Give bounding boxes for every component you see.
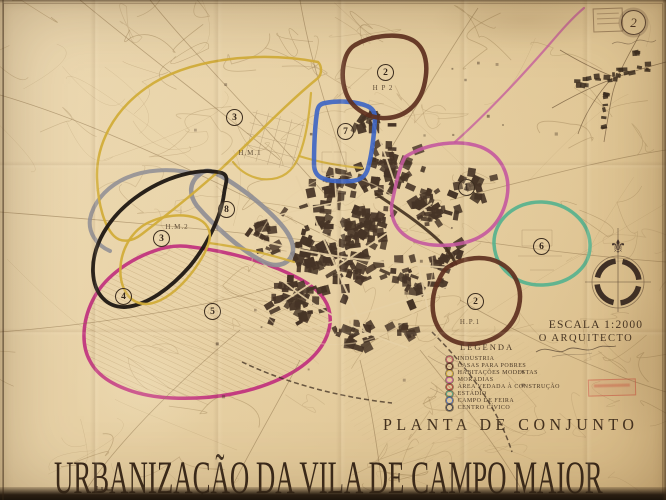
zone-marker-2: 2 (377, 64, 394, 81)
zone-marker-3: 3 (153, 230, 170, 247)
right-edge-shadow (662, 0, 666, 500)
margin-handwriting (612, 40, 656, 44)
zone-marker-4: 4 (115, 288, 132, 305)
legend-color-ring (446, 370, 453, 377)
legend-item: HABITAÇÕES MODESTAS (446, 370, 631, 377)
legend-item-label: CAMPO DE FEIRA (458, 398, 515, 404)
area-label: H.P.1 (460, 318, 480, 326)
legend: LEGENDA INDUSTRIACASAS PARA POBRESHABITA… (446, 342, 631, 411)
area-label: H.M.2 (165, 223, 188, 231)
legend-color-ring (446, 404, 453, 411)
sheet-number-seal: 2 (621, 10, 646, 35)
legend-item: CASAS PARA POBRES (446, 363, 631, 370)
zone-marker-2: 2 (467, 293, 484, 310)
legend-item: CENTRO CÍVICO (446, 404, 631, 411)
zone-marker-6: 6 (533, 238, 550, 255)
legend-color-ring (446, 384, 453, 391)
map-sheet: ⚜ 3271834562 H.M.1H P 2H.M.2H.P.1 LEGEND… (0, 0, 666, 500)
legend-color-ring (446, 377, 453, 384)
legend-item-label: ESTÁDIO (458, 391, 487, 397)
legend-item-label: CENTRO CÍVICO (458, 405, 511, 411)
compass-rose: ⚜ (585, 228, 651, 312)
plan-title: PLANTA DE CONJUNTO (383, 416, 638, 435)
red-registry-stamp (588, 378, 636, 396)
area-label: H.M.1 (238, 149, 261, 157)
legend-item-label: HABITAÇÕES MODESTAS (458, 370, 538, 376)
suburb-roads (552, 34, 666, 142)
zone-marker-7: 7 (337, 123, 354, 140)
industria-access-line (455, 8, 584, 142)
top-edge-shadow (0, 0, 666, 3)
north-fleur-de-lis-icon: ⚜ (609, 236, 626, 258)
scale-label: ESCALA 1:2000 (540, 319, 652, 331)
legend-item-label: ÁREA VEDADA À CONSTRUÇÃO (458, 384, 560, 390)
legend-item-label: MORADIAS (458, 377, 494, 383)
archive-stamp-box (593, 7, 624, 32)
legend-item: INDUSTRIA (446, 356, 631, 363)
zone-centro-civico-tail (90, 170, 199, 251)
legend-color-ring (446, 397, 453, 404)
legend-color-ring (446, 391, 453, 398)
zone-marker-8: 8 (218, 201, 235, 218)
legend-item: CAMPO DE FEIRA (446, 397, 631, 404)
area-label: H P 2 (373, 84, 394, 92)
zone-marker-5: 5 (204, 303, 221, 320)
legend-item-label: CASAS PARA POBRES (458, 363, 527, 369)
legend-item-label: INDUSTRIA (458, 356, 495, 362)
zone-marker-3: 3 (226, 109, 243, 126)
bottom-edge-shadow (0, 487, 666, 500)
legend-color-ring (446, 363, 453, 370)
legend-color-ring (446, 356, 453, 363)
suburb-building-blocks (574, 50, 651, 130)
zone-marker-1: 1 (458, 179, 475, 196)
architect-label: O ARQUITECTO (534, 333, 638, 344)
left-edge-shadow (2, 0, 4, 500)
